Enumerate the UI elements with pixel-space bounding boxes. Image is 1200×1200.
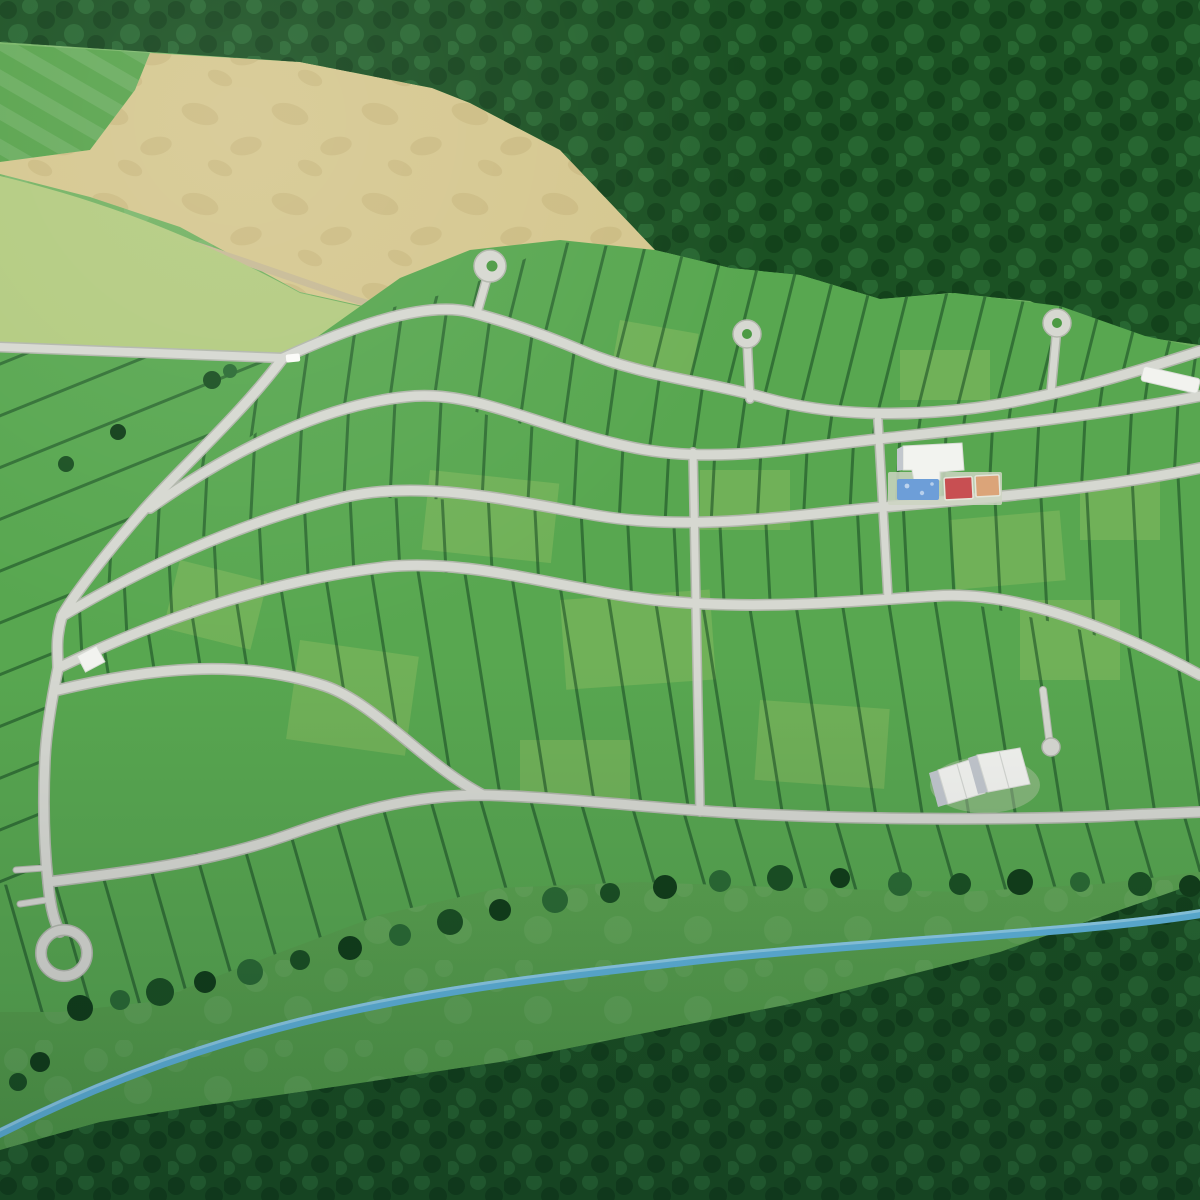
light-overlay [0,0,1200,1200]
aerial-render-canvas [0,0,1200,1200]
aerial-render [0,0,1200,1200]
